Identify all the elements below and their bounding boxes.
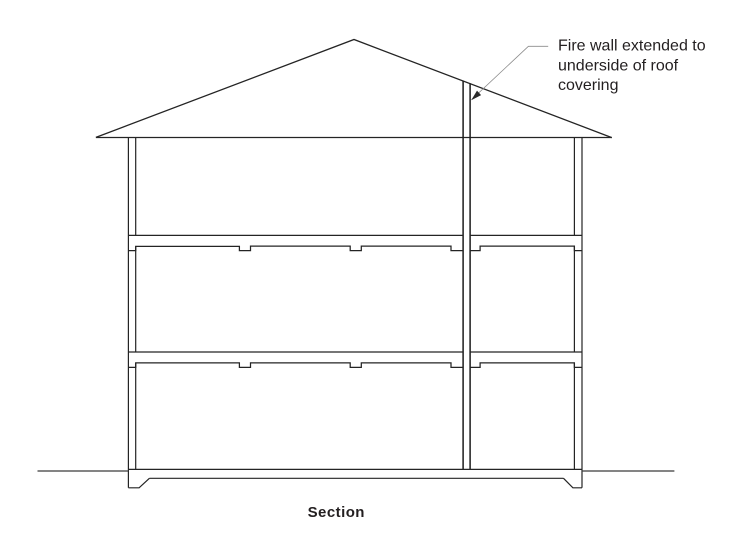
svg-text:Fire wall extended to: Fire wall extended to [558, 38, 706, 55]
svg-text:Section: Section [308, 504, 365, 521]
svg-text:covering: covering [558, 77, 618, 94]
svg-text:underside of roof: underside of roof [558, 57, 679, 74]
